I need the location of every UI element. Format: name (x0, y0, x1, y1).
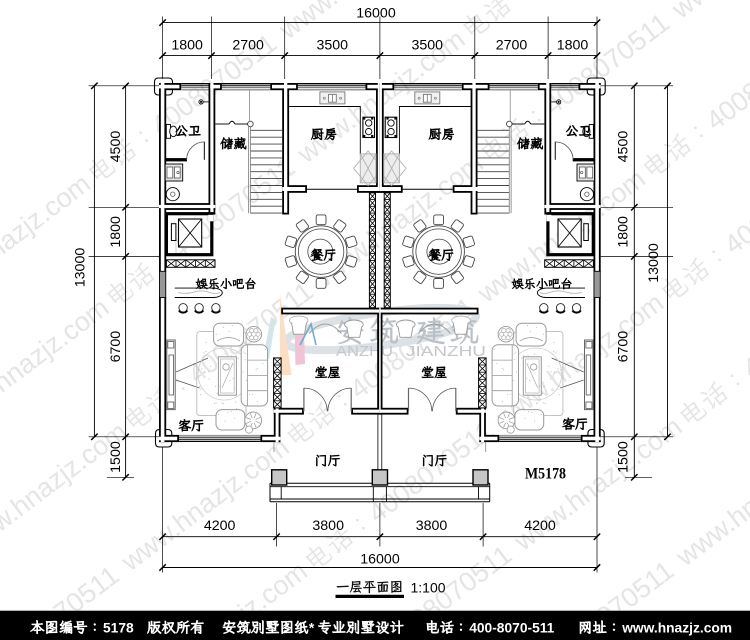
svg-text:1800: 1800 (108, 216, 124, 248)
svg-text:6700: 6700 (616, 331, 632, 363)
svg-text:5178: 5178 (103, 620, 134, 635)
svg-text:16000: 16000 (360, 552, 400, 568)
svg-text:13000: 13000 (73, 248, 89, 288)
svg-text:4200: 4200 (524, 518, 556, 534)
svg-text:2700: 2700 (496, 38, 528, 54)
svg-text:3800: 3800 (312, 518, 344, 534)
svg-text:1500: 1500 (108, 441, 124, 473)
svg-text:16000: 16000 (356, 6, 396, 22)
svg-text:4500: 4500 (616, 131, 632, 163)
svg-text:2700: 2700 (232, 38, 264, 54)
svg-text:*: * (309, 620, 315, 635)
svg-text:3500: 3500 (317, 38, 349, 54)
svg-text:1800: 1800 (616, 216, 632, 248)
svg-text:M5178: M5178 (525, 466, 566, 483)
svg-text:www.hnazjz.com: www.hnazjz.com (621, 620, 732, 635)
svg-text:JIANZHU: JIANZHU (406, 344, 486, 360)
svg-text:1500: 1500 (616, 441, 632, 473)
svg-text:6700: 6700 (108, 331, 124, 363)
svg-text:400-8070-511: 400-8070-511 (469, 620, 554, 635)
svg-text:1800: 1800 (171, 38, 203, 54)
svg-text:1800: 1800 (557, 38, 589, 54)
svg-text:1:100: 1:100 (411, 580, 446, 596)
svg-text:3500: 3500 (412, 38, 444, 54)
svg-text:13000: 13000 (646, 243, 662, 283)
svg-text:ANZHU: ANZHU (336, 344, 393, 360)
svg-text:4500: 4500 (108, 131, 124, 163)
svg-text:3800: 3800 (416, 518, 448, 534)
svg-text:4200: 4200 (204, 518, 236, 534)
